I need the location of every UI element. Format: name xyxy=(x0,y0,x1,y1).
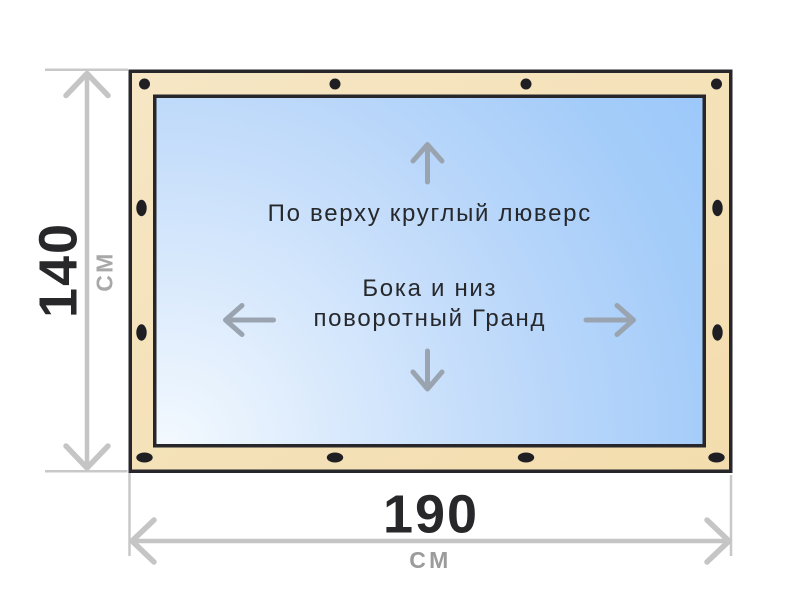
svg-text:140: 140 xyxy=(29,222,89,318)
svg-text:СМ: СМ xyxy=(409,547,451,573)
svg-text:190: 190 xyxy=(383,485,479,545)
svg-text:поворотный Гранд: поворотный Гранд xyxy=(313,305,546,332)
svg-text:Бока и низ: Бока и низ xyxy=(362,275,497,302)
svg-text:СМ: СМ xyxy=(92,251,118,291)
svg-text:По верху круглый люверс: По верху круглый люверс xyxy=(268,200,592,227)
